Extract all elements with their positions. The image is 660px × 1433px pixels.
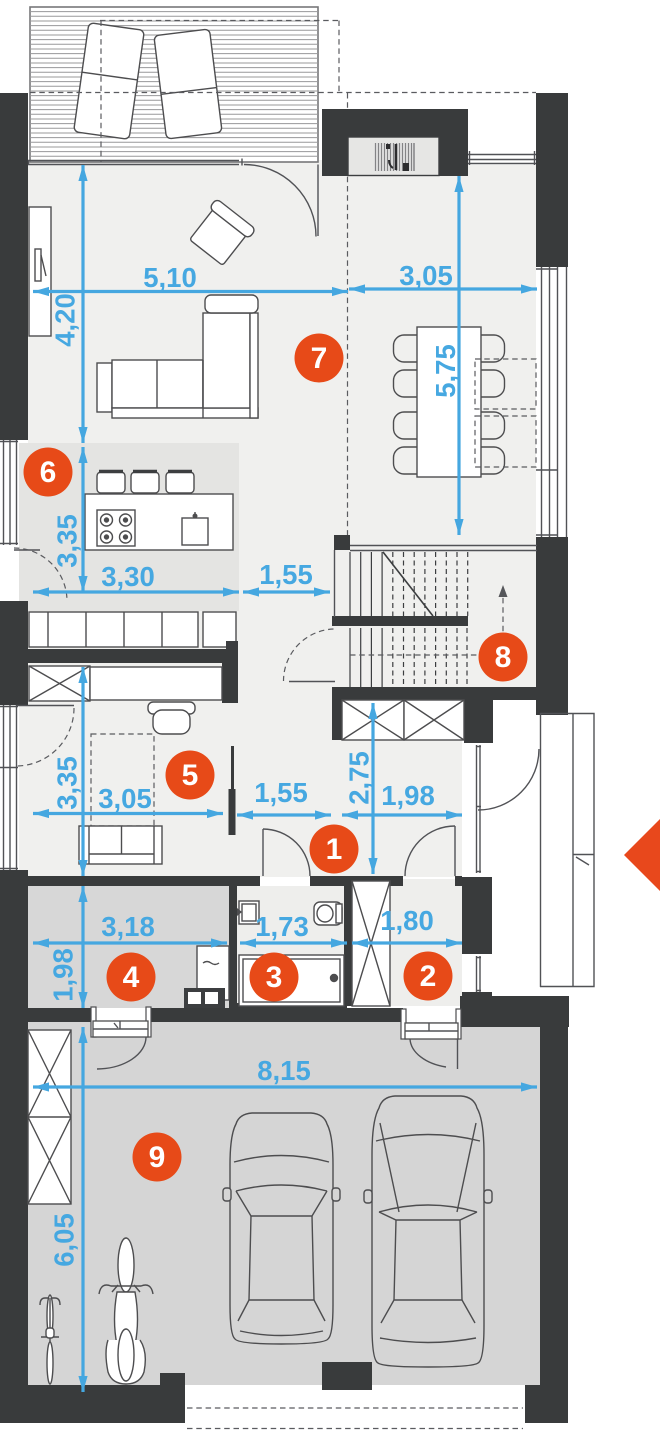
svg-text:3,05: 3,05	[98, 783, 152, 814]
svg-text:6: 6	[40, 456, 57, 489]
svg-text:2,75: 2,75	[344, 751, 375, 805]
svg-text:7: 7	[311, 342, 328, 375]
svg-text:5,75: 5,75	[430, 344, 461, 398]
svg-text:1,80: 1,80	[380, 905, 434, 936]
svg-text:1,98: 1,98	[48, 948, 79, 1002]
svg-text:3: 3	[266, 961, 283, 994]
svg-text:3,18: 3,18	[101, 911, 155, 942]
svg-text:4: 4	[123, 961, 140, 994]
svg-text:1: 1	[326, 833, 343, 866]
svg-text:1,73: 1,73	[255, 911, 309, 942]
svg-text:1,55: 1,55	[259, 559, 313, 590]
svg-text:5: 5	[182, 759, 199, 792]
svg-text:3,35: 3,35	[52, 514, 83, 568]
svg-text:8,15: 8,15	[257, 1055, 311, 1086]
svg-text:2: 2	[420, 960, 437, 993]
svg-text:9: 9	[149, 1141, 166, 1174]
svg-text:1,98: 1,98	[381, 780, 435, 811]
svg-text:5,10: 5,10	[143, 262, 197, 293]
svg-text:8: 8	[495, 641, 512, 674]
svg-text:3,30: 3,30	[101, 561, 155, 592]
svg-text:6,05: 6,05	[49, 1213, 80, 1267]
svg-text:3,05: 3,05	[399, 260, 453, 291]
svg-text:1,55: 1,55	[254, 777, 308, 808]
svg-text:4,20: 4,20	[50, 293, 81, 347]
svg-text:3,35: 3,35	[52, 756, 83, 810]
